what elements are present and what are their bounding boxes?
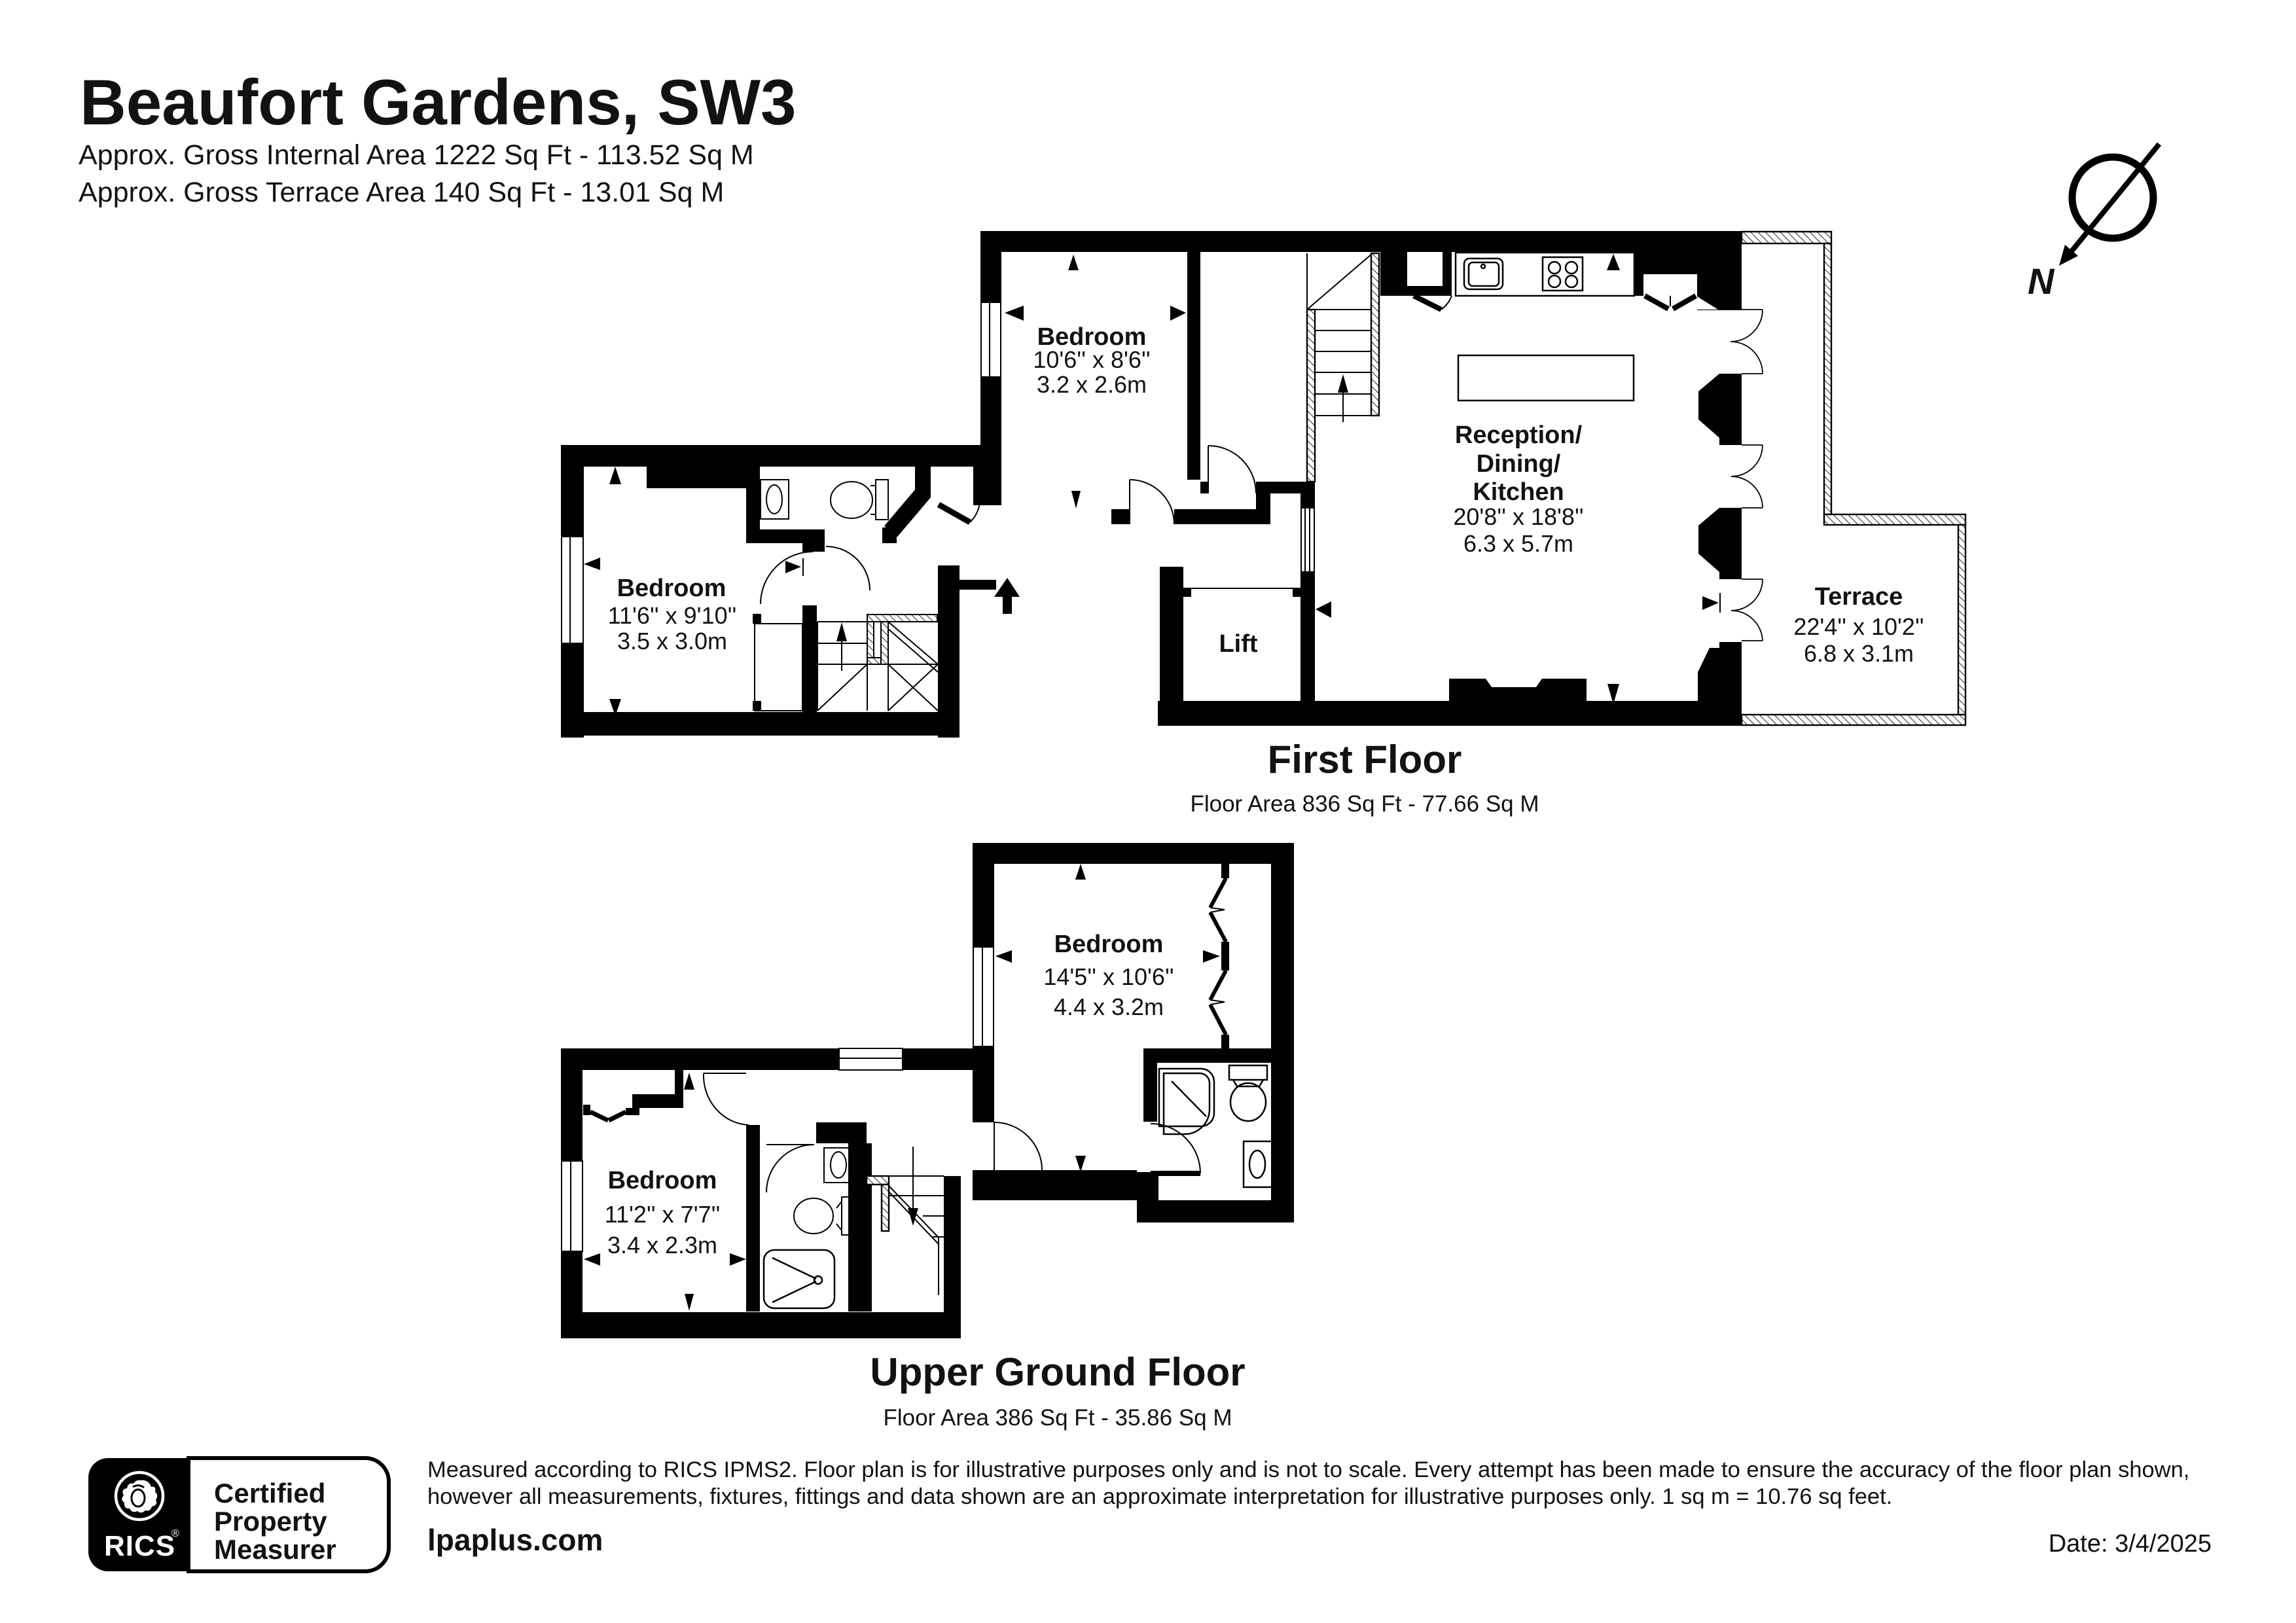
svg-text:RICS: RICS — [104, 1530, 175, 1562]
svg-text:Upper Ground Floor: Upper Ground Floor — [870, 1350, 1245, 1394]
svg-text:Property: Property — [214, 1506, 327, 1537]
svg-text:Bedroom: Bedroom — [608, 1167, 717, 1194]
svg-text:however all measurements, fixt: however all measurements, fixtures, fitt… — [427, 1484, 1892, 1509]
svg-text:Beaufort Gardens, SW3: Beaufort Gardens, SW3 — [80, 66, 797, 138]
svg-text:Dining/: Dining/ — [1477, 450, 1561, 478]
svg-text:4.4 x 3.2m: 4.4 x 3.2m — [1054, 993, 1164, 1020]
svg-text:3.2 x 2.6m: 3.2 x 2.6m — [1037, 371, 1147, 398]
svg-text:6.8 x 3.1m: 6.8 x 3.1m — [1804, 640, 1914, 667]
svg-text:Lift: Lift — [1219, 630, 1257, 658]
svg-text:6.3 x 5.7m: 6.3 x 5.7m — [1463, 530, 1573, 557]
svg-text:Measurer: Measurer — [214, 1534, 336, 1565]
svg-text:lpaplus.com: lpaplus.com — [427, 1523, 603, 1557]
svg-text:Approx. Gross Terrace Area 140: Approx. Gross Terrace Area 140 Sq Ft - 1… — [79, 177, 724, 208]
svg-text:First Floor: First Floor — [1268, 738, 1462, 781]
svg-text:10'6'' x 8'6'': 10'6'' x 8'6'' — [1033, 346, 1150, 373]
svg-text:Bedroom: Bedroom — [1054, 931, 1164, 958]
svg-text:Bedroom: Bedroom — [617, 575, 726, 602]
svg-text:Date: 3/4/2025: Date: 3/4/2025 — [2049, 1530, 2212, 1558]
svg-text:Floor Area 386 Sq Ft - 35.86 S: Floor Area 386 Sq Ft - 35.86 Sq M — [883, 1405, 1232, 1431]
svg-text:11'6'' x 9'10'': 11'6'' x 9'10'' — [608, 602, 737, 629]
svg-text:3.5 x 3.0m: 3.5 x 3.0m — [617, 628, 727, 654]
svg-text:22'4'' x 10'2'': 22'4'' x 10'2'' — [1793, 613, 1924, 640]
svg-text:11'2'' x 7'7'': 11'2'' x 7'7'' — [605, 1201, 721, 1228]
svg-text:Approx. Gross Internal Area 12: Approx. Gross Internal Area 1222 Sq Ft -… — [79, 139, 754, 171]
svg-text:Floor Area 836 Sq Ft - 77.66 S: Floor Area 836 Sq Ft - 77.66 Sq M — [1190, 791, 1539, 817]
svg-text:14'5'' x 10'6'': 14'5'' x 10'6'' — [1043, 963, 1174, 990]
svg-text:Kitchen: Kitchen — [1473, 478, 1564, 506]
svg-text:Certified: Certified — [214, 1478, 325, 1508]
svg-text:Reception/: Reception/ — [1455, 421, 1583, 449]
svg-text:Measured according to RICS IPM: Measured according to RICS IPMS2. Floor … — [427, 1457, 2189, 1482]
svg-text:20'8'' x 18'8'': 20'8'' x 18'8'' — [1453, 503, 1583, 530]
svg-text:®: ® — [171, 1528, 179, 1539]
svg-text:3.4 x 2.3m: 3.4 x 2.3m — [607, 1232, 717, 1258]
svg-text:N: N — [2028, 260, 2055, 302]
svg-text:Terrace: Terrace — [1815, 583, 1903, 611]
